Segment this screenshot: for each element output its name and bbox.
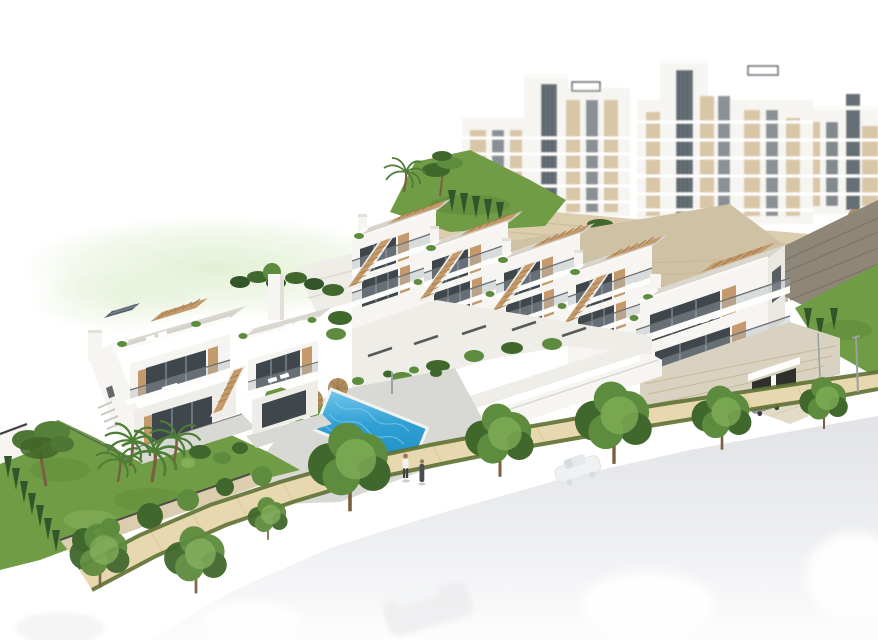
scene-canvas <box>0 0 878 640</box>
architectural-render: Aerial 3D architectural rendering of a h… <box>0 0 878 640</box>
